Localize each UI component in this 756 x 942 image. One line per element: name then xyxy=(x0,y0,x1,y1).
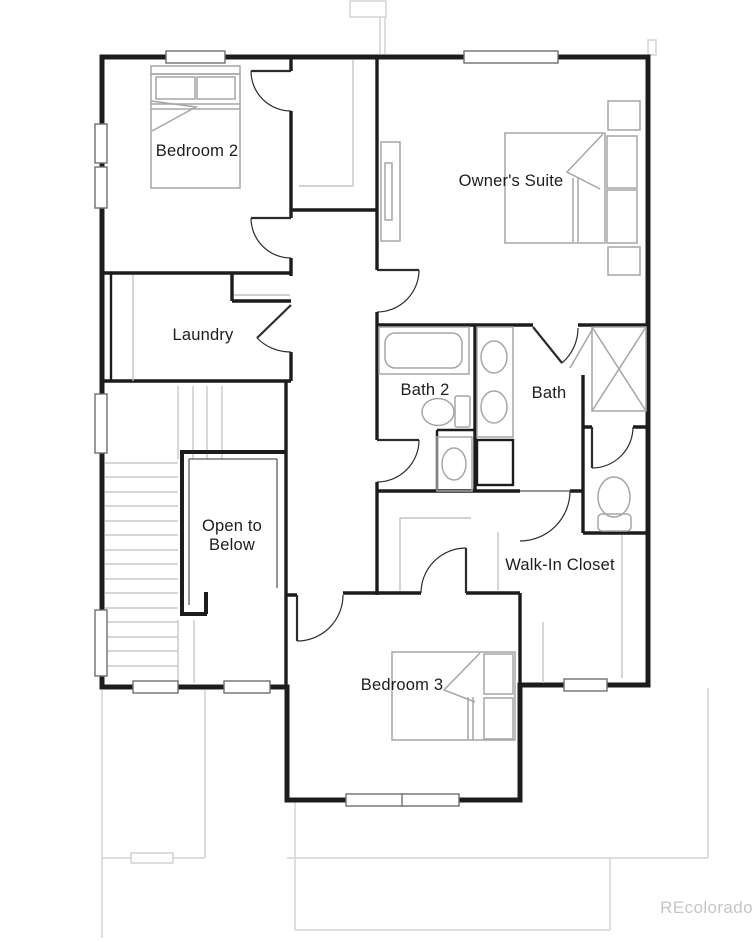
walk-in-closet-door xyxy=(520,491,570,541)
bedroom3-closet-door xyxy=(421,548,466,593)
window xyxy=(346,794,403,806)
bedroom3-entry-door xyxy=(297,595,343,641)
bedroom2-closet-shelf xyxy=(299,60,353,186)
bedroom2-bed xyxy=(151,66,240,188)
room-label-walk-in-closet: Walk-In Closet xyxy=(505,556,614,575)
bath2-toilet xyxy=(422,396,470,427)
owners-suite-door xyxy=(377,270,419,312)
bath2-tub xyxy=(379,327,469,374)
window xyxy=(95,610,107,676)
water-closet-toilet xyxy=(598,477,631,531)
laundry-door xyxy=(257,305,291,352)
owner-bath-double-vanity xyxy=(477,327,513,437)
window xyxy=(133,681,178,693)
ghost-window xyxy=(131,853,173,863)
bedroom2-entry-door xyxy=(251,218,291,258)
room-label-bath: Bath xyxy=(532,384,567,403)
room-label-open-to-below: Open to Below xyxy=(186,517,278,555)
owner-dresser-detail xyxy=(385,163,392,220)
window xyxy=(402,794,459,806)
owners-bath-door xyxy=(533,327,578,363)
linen-closet xyxy=(477,440,513,485)
nightstand xyxy=(608,101,640,130)
nightstand xyxy=(608,247,640,275)
floor-plan-drawing xyxy=(0,0,756,942)
owner-dresser xyxy=(381,142,400,241)
window xyxy=(95,394,107,453)
window xyxy=(564,679,607,691)
window xyxy=(464,51,558,63)
window xyxy=(95,167,107,208)
stair-landing-lines xyxy=(178,386,222,459)
bath2-door xyxy=(377,440,419,482)
room-label-bath2: Bath 2 xyxy=(401,381,450,400)
windows xyxy=(95,51,607,806)
water-closet-door xyxy=(592,427,633,468)
bedroom3-closet-shelf xyxy=(400,518,471,591)
room-label-bedroom3: Bedroom 3 xyxy=(361,676,444,695)
window xyxy=(95,124,107,163)
window xyxy=(224,681,270,693)
room-label-bedroom2: Bedroom 2 xyxy=(156,142,239,161)
window xyxy=(166,51,225,63)
bedroom2-closet-door xyxy=(251,71,291,111)
bath2-sink-vanity xyxy=(437,437,472,491)
room-label-laundry: Laundry xyxy=(172,326,233,345)
floor-plan: Bedroom 2 Owner's Suite Laundry Bath 2 B… xyxy=(0,0,756,942)
bedroom3-bed xyxy=(392,652,515,740)
walk-in-closet-rods xyxy=(498,532,622,683)
room-label-owners-suite: Owner's Suite xyxy=(459,172,564,191)
fixtures xyxy=(133,60,646,740)
watermark: REcolorado xyxy=(660,898,753,918)
